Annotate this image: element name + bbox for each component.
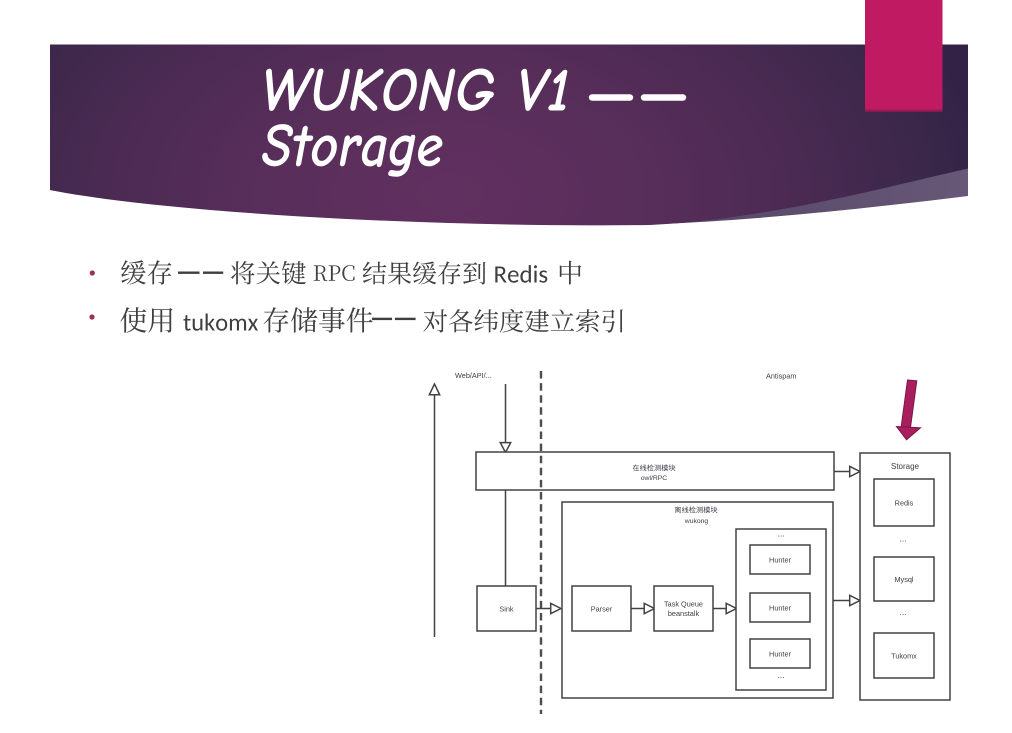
svg-text:Hunter: Hunter [769, 604, 791, 613]
svg-text:Antispam: Antispam [766, 372, 796, 381]
svg-text:Hunter: Hunter [769, 556, 791, 565]
svg-text:wukong: wukong [684, 518, 709, 525]
svg-text:owl/RPC: owl/RPC [641, 475, 668, 482]
svg-text:Task Queue: Task Queue [664, 600, 703, 609]
svg-text:Tukomx: Tukomx [891, 652, 917, 661]
svg-text:Storage: Storage [891, 462, 920, 471]
svg-text:Mysql: Mysql [894, 575, 913, 584]
svg-text:Web/API/...: Web/API/... [455, 371, 492, 380]
svg-text:...: ... [777, 670, 784, 680]
svg-text:beanstalk: beanstalk [668, 609, 700, 618]
svg-text:Redis: Redis [895, 499, 914, 508]
svg-text:...: ... [777, 529, 784, 539]
svg-text:Sink: Sink [499, 605, 514, 614]
svg-text:Hunter: Hunter [769, 650, 791, 659]
svg-text:...: ... [899, 534, 906, 544]
svg-text:...: ... [899, 607, 906, 617]
svg-text:Parser: Parser [591, 605, 613, 614]
